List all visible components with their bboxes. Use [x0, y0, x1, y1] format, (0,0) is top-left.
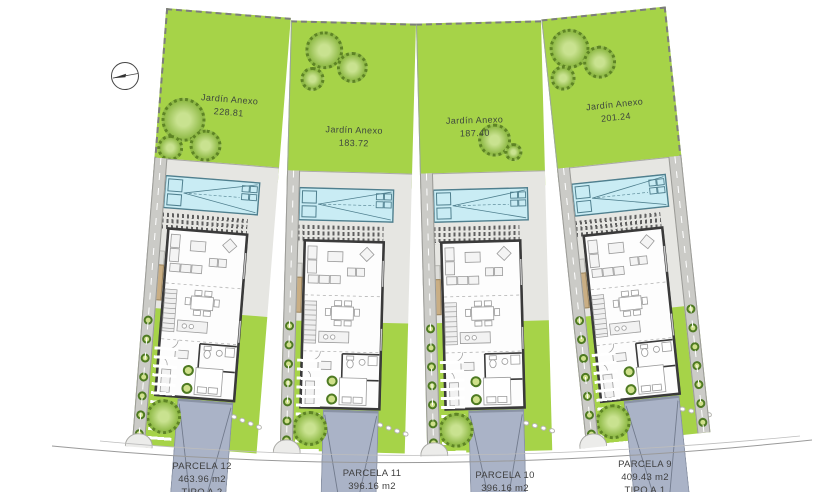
- bush-icon: [690, 342, 700, 352]
- annex-garden: Jardín Anexo 187.40: [416, 20, 545, 188]
- bush-icon: [426, 343, 435, 352]
- plot-area: 396.16 m2: [302, 480, 442, 492]
- bush-icon: [698, 417, 708, 427]
- bush-icon: [692, 361, 702, 371]
- site-plan-canvas: Jardín Anexo 228.81 Jardín Anexo 183.72: [0, 0, 819, 492]
- garden-area-value: 187.40: [420, 126, 530, 142]
- bush-icon: [284, 359, 293, 368]
- swimming-pool: [298, 187, 395, 224]
- bush-icon: [581, 372, 591, 382]
- bush-icon: [688, 323, 698, 333]
- bush-icon: [284, 340, 293, 349]
- bush-icon: [282, 416, 291, 425]
- stepping-stone-icon: [679, 406, 686, 412]
- bush-icon: [283, 378, 292, 387]
- bush-icon: [426, 324, 435, 333]
- bush-icon: [136, 410, 146, 420]
- swimming-pool: [432, 187, 529, 224]
- garden-area-value: 183.72: [295, 136, 413, 152]
- stepping-stone-icon: [688, 408, 695, 414]
- plot-type: TIPO A.1: [575, 484, 715, 492]
- bush-icon: [428, 419, 437, 428]
- bush-icon: [575, 316, 585, 326]
- garden-label: Jardín Anexo 187.40: [419, 113, 530, 142]
- bush-icon: [428, 400, 437, 409]
- plot-name: PARCELA 10: [435, 469, 575, 482]
- bush-icon: [285, 321, 294, 330]
- annex-garden: Jardín Anexo 183.72: [287, 20, 416, 188]
- bush-icon: [694, 380, 704, 390]
- annex-garden: Jardín Anexo 228.81: [153, 8, 291, 182]
- parcel-12: Jardín Anexo 228.81: [132, 8, 291, 453]
- north-compass-icon: [110, 61, 140, 91]
- plot-name: PARCELA 9: [575, 458, 715, 471]
- bush-icon: [696, 399, 706, 409]
- garden-label: Jardín Anexo 183.72: [295, 123, 414, 152]
- garden-label: Jardín Anexo 201.24: [555, 92, 675, 130]
- bush-icon: [139, 372, 149, 382]
- bush-icon: [427, 362, 436, 371]
- tree-icon: [300, 67, 325, 92]
- tree-icon: [188, 128, 222, 162]
- bush-icon: [140, 353, 150, 363]
- bush-icon: [142, 334, 152, 344]
- plot-name: PARCELA 12: [132, 460, 272, 473]
- bush-icon: [686, 304, 696, 314]
- tree-icon: [336, 52, 368, 84]
- parcel-10-label: PARCELA 10 396.16 m2: [435, 469, 575, 492]
- bush-icon: [137, 391, 147, 401]
- plot-type: TIPO A.2: [132, 486, 272, 492]
- plot-area: 396.16 m2: [435, 482, 575, 492]
- bush-icon: [427, 381, 436, 390]
- plot-area: 463.96 m2: [132, 473, 272, 486]
- parcel-10: Jardín Anexo 187.40: [416, 20, 552, 453]
- bush-icon: [583, 391, 593, 401]
- parcel-11: Jardín Anexo 183.72: [280, 20, 416, 453]
- bush-icon: [283, 397, 292, 406]
- plot-name: PARCELA 11: [302, 467, 442, 480]
- parcel-9: Jardín Anexo 201.24: [541, 6, 710, 445]
- tree-icon: [581, 44, 617, 80]
- bush-icon: [579, 354, 589, 364]
- parcel-11-label: PARCELA 11 396.16 m2: [302, 467, 442, 492]
- plot-area: 409.43 m2: [575, 471, 715, 484]
- bush-icon: [585, 410, 595, 420]
- bush-icon: [577, 335, 587, 345]
- parcel-9-label: PARCELA 9 409.43 m2 TIPO A.1: [575, 458, 715, 492]
- tree-icon: [504, 143, 522, 161]
- parcel-12-label: PARCELA 12 463.96 m2 TIPO A.2: [132, 460, 272, 492]
- bush-icon: [143, 315, 153, 325]
